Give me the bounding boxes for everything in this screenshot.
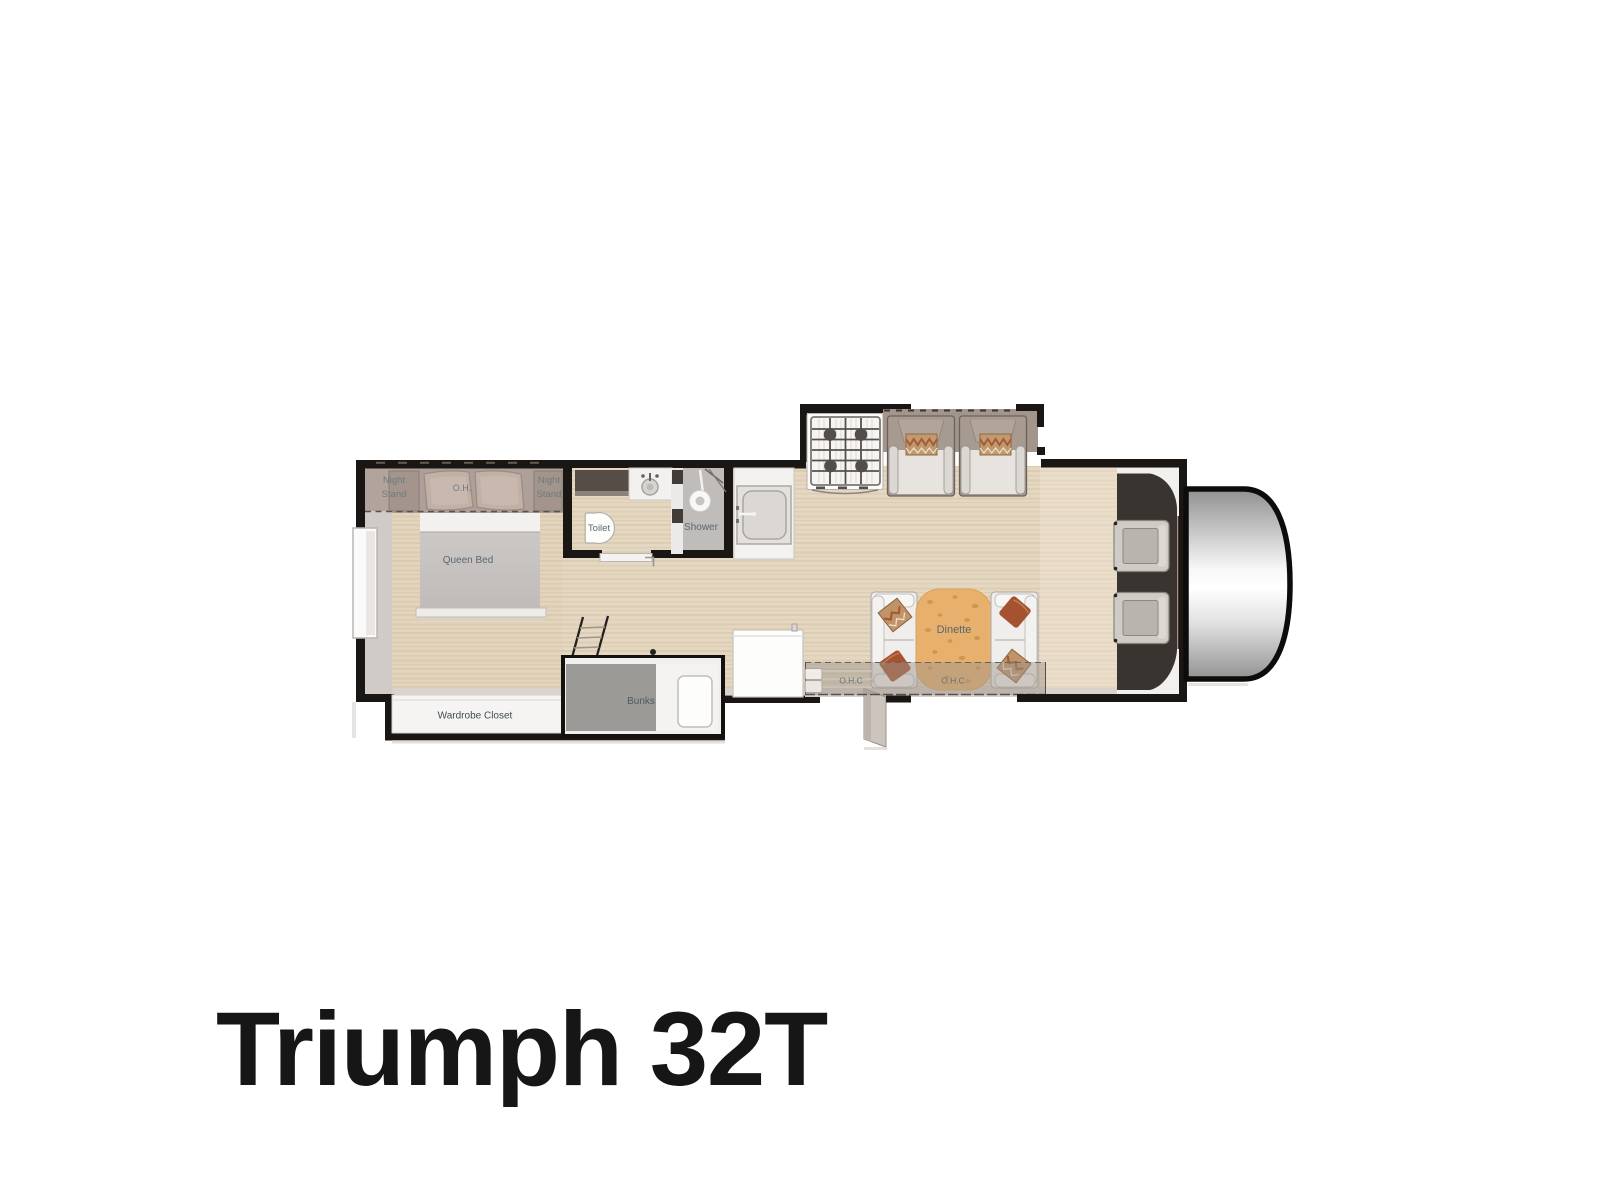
svg-text:O.H.C: O.H.C [839,676,863,686]
svg-text:Shower: Shower [684,522,719,533]
svg-text:Queen Bed: Queen Bed [443,555,494,566]
svg-text:Wardrobe Closet: Wardrobe Closet [438,711,513,722]
svg-text:Triumph 32T: Triumph 32T [216,991,828,1108]
svg-text:Night: Night [383,475,406,486]
svg-text:O.H.: O.H. [453,483,472,493]
svg-text:Bunks: Bunks [627,696,655,707]
svg-text:Stand: Stand [382,489,407,500]
svg-text:O.H.C: O.H.C [941,676,965,686]
svg-text:Dinette: Dinette [937,624,972,636]
svg-text:Stand: Stand [537,489,562,500]
svg-text:Toilet: Toilet [588,523,611,534]
svg-text:Night: Night [538,475,561,486]
